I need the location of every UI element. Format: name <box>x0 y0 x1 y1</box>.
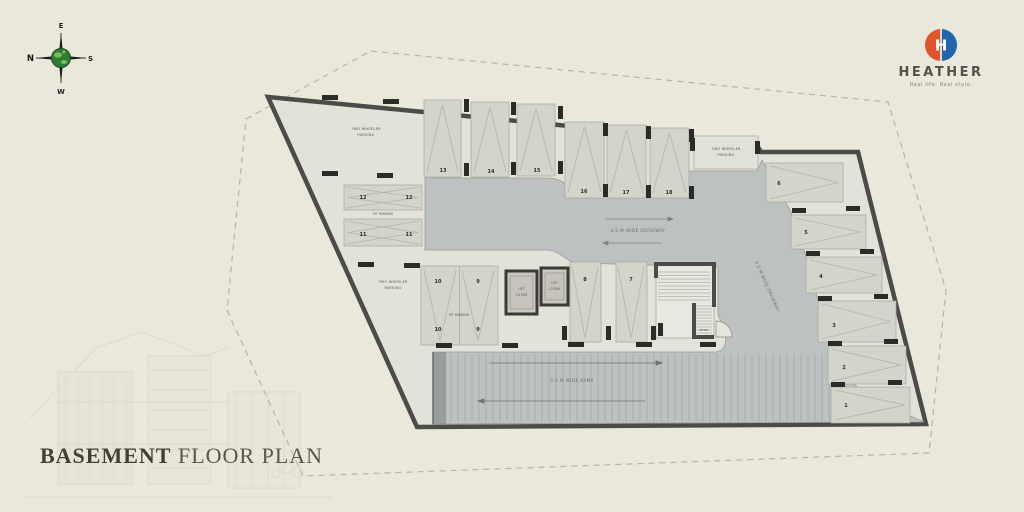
space-11-number-right: 11 <box>406 232 413 238</box>
parking-space-16 <box>565 122 604 198</box>
space-5-number: 5 <box>804 230 808 236</box>
two-wheeler-label-line2: PARKING <box>717 153 734 157</box>
compass-south-label: S <box>88 55 93 63</box>
column-marker <box>658 323 663 336</box>
space-3-number: 3 <box>832 323 836 329</box>
compass-rose: E S W N <box>24 18 98 96</box>
entry-label: ENTRY <box>699 328 708 332</box>
pit-parking-label-center: PIT PARKING <box>449 313 470 317</box>
two-wheeler-mid-left-line1: TWO WHEELER <box>377 280 408 284</box>
pit-parking-center-block: 10 9 10 9 PIT PARKING <box>421 266 498 345</box>
parking-space-3 <box>818 301 896 342</box>
space-10-number-bottom: 10 <box>435 327 442 333</box>
space-8-number: 8 <box>583 277 587 283</box>
lift-2-capacity: 12 PAX <box>549 287 561 291</box>
two-wheeler-label-line1: TWO WHEELER <box>710 147 741 151</box>
lift-1-label: LIFT <box>518 287 526 291</box>
space-16-number: 16 <box>581 189 588 195</box>
parking-space-2 <box>828 346 906 384</box>
space-2-number: 2 <box>842 365 846 371</box>
parking-space-4 <box>806 257 882 293</box>
space-10-number-top: 10 <box>435 279 442 285</box>
compass-north-label: N <box>27 54 34 64</box>
space-11-number-left: 11 <box>360 232 367 238</box>
two-wheeler-top-left-line2: PARKING <box>357 133 374 137</box>
brand-tagline: Real life. Real style. <box>876 82 1006 88</box>
brand-block: H HEATHER Real life. Real style. <box>876 28 1006 88</box>
space-4-number: 4 <box>819 274 823 280</box>
background-building-sketch <box>24 332 332 497</box>
two-wheeler-parking-top-right: TWO WHEELER PARKING <box>690 136 760 169</box>
basement-floor-plan-page: 5.5 M WIDE RAMP 13 14 15 16 17 18 <box>0 0 1024 512</box>
space-15-number: 15 <box>534 168 541 174</box>
pit-parking-label-left: PIT PARKING <box>373 212 394 216</box>
compass-east-label: E <box>59 22 64 30</box>
two-wheeler-mid-left-line2: PARKING <box>384 286 401 290</box>
brand-name: HEATHER <box>876 65 1006 80</box>
parking-space-14 <box>471 102 509 177</box>
parking-space-18 <box>650 128 689 198</box>
space-14-number: 14 <box>488 169 495 175</box>
space-7-number: 7 <box>629 277 633 283</box>
compass-west-label: W <box>57 88 65 96</box>
globe <box>52 49 71 68</box>
space-6-number: 6 <box>777 181 781 187</box>
space-9-number-top: 9 <box>476 279 480 285</box>
lift-2-label: LIFT <box>551 281 559 285</box>
parking-space-17 <box>607 125 646 198</box>
lift-1-capacity: 10 PAX <box>516 293 528 297</box>
svg-text:H: H <box>935 37 948 55</box>
parking-space-15 <box>517 104 555 176</box>
parking-space-13 <box>424 100 461 177</box>
space-13-number: 13 <box>440 168 447 174</box>
title-bold: BASEMENT <box>40 443 171 468</box>
parking-space-5 <box>791 215 866 249</box>
driveway-label-center: 4.5 M WIDE DRIVEWAY <box>611 228 666 233</box>
space-17-number: 17 <box>623 190 630 196</box>
space-9-number-bottom: 9 <box>476 327 480 333</box>
space-1-number: 1 <box>844 403 848 409</box>
space-18-number: 18 <box>666 190 673 196</box>
two-wheeler-top-left-line1: TWO WHEELER <box>350 127 381 131</box>
space-12-number-left: 12 <box>360 195 367 201</box>
parking-space-1 <box>831 387 910 423</box>
heather-logo-icon: H <box>924 28 958 62</box>
page-title: BASEMENT FLOOR PLAN <box>40 443 323 469</box>
ramp-label: 5.5 M WIDE RAMP <box>550 378 593 383</box>
title-regular: FLOOR PLAN <box>171 443 323 468</box>
floor-plan-drawing: 5.5 M WIDE RAMP 13 14 15 16 17 18 <box>0 0 1024 512</box>
space-12-number-right: 12 <box>406 195 413 201</box>
